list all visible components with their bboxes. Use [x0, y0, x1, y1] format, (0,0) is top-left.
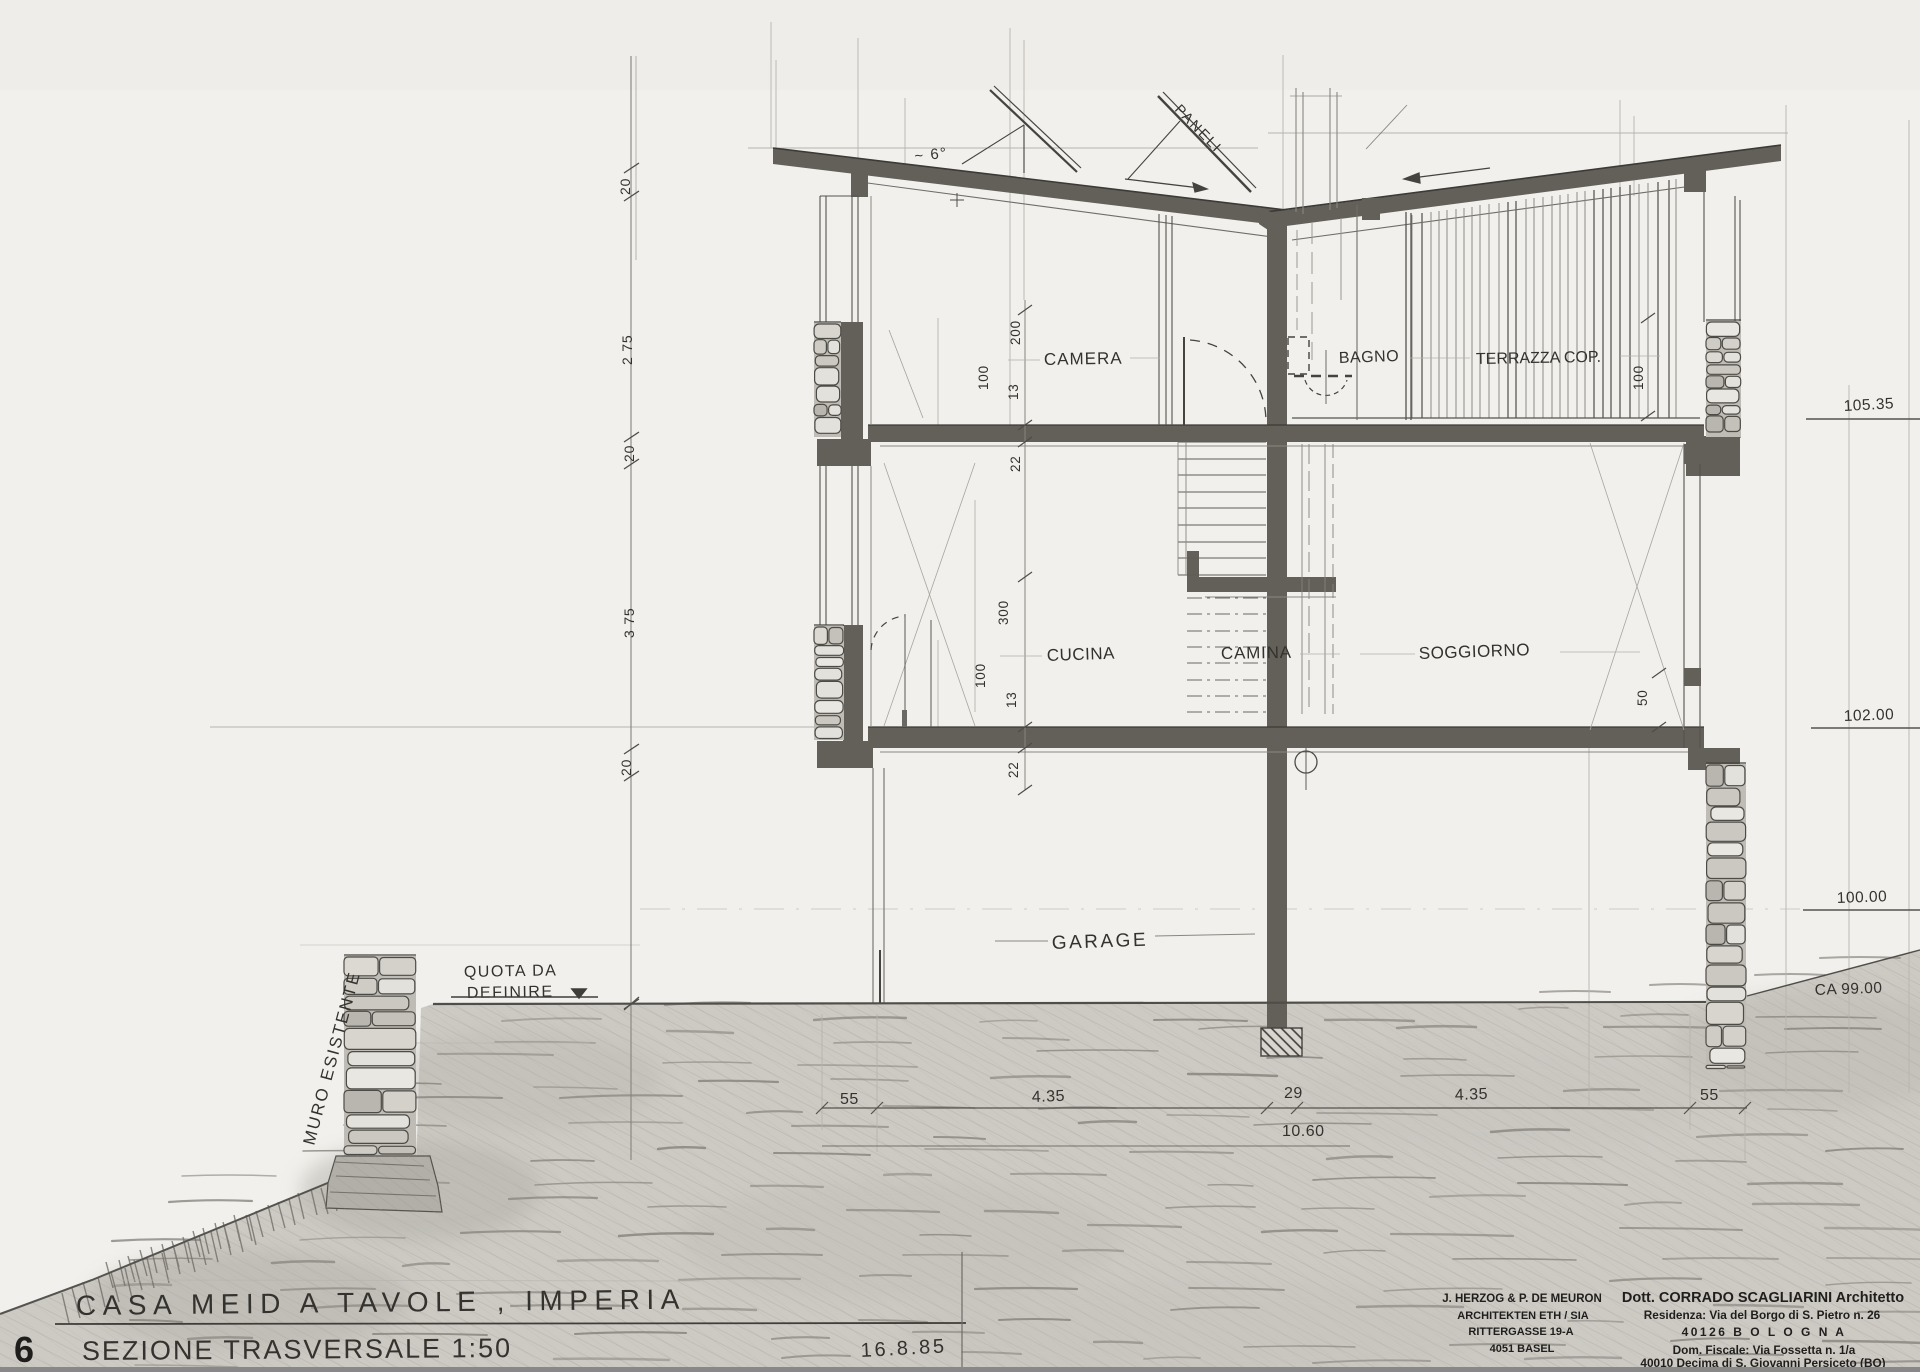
svg-text:QUOTA DA: QUOTA DA: [464, 962, 558, 981]
svg-text:105.35: 105.35: [1843, 395, 1894, 415]
svg-text:BAGNO: BAGNO: [1339, 348, 1400, 367]
svg-text:2 75: 2 75: [619, 335, 635, 365]
svg-text:CA 99.00: CA 99.00: [1814, 980, 1882, 999]
svg-text:22: 22: [1008, 455, 1023, 472]
svg-text:CUCINA: CUCINA: [1046, 644, 1115, 665]
svg-text:6: 6: [14, 1329, 34, 1367]
svg-text:CAMINA: CAMINA: [1221, 643, 1292, 663]
svg-text:3 75: 3 75: [621, 608, 637, 638]
svg-text:Dott. CORRADO SCAGLIARINI Arch: Dott. CORRADO SCAGLIARINI Architetto: [1622, 1290, 1904, 1306]
svg-text:J. HERZOG & P. DE MEURON: J. HERZOG & P. DE MEURON: [1442, 1293, 1602, 1305]
svg-text:SEZIONE TRASVERSALE 1:5: SEZIONE TRASVERSALE 1:50: [82, 1333, 512, 1366]
svg-text:SOGGIORNO: SOGGIORNO: [1418, 640, 1530, 663]
svg-text:Dom. Fiscale: Via Fossetta: Dom. Fiscale: Via Fossetta n. 1/a: [1673, 1343, 1856, 1357]
svg-text:55: 55: [1700, 1087, 1719, 1104]
svg-text:22: 22: [1006, 761, 1021, 778]
svg-text:100: 100: [1631, 365, 1646, 390]
svg-text:4.35: 4.35: [1455, 1086, 1489, 1104]
svg-text:4051 BASEL: 4051 BASEL: [1490, 1343, 1555, 1355]
svg-text:20: 20: [621, 445, 637, 462]
svg-text:RITTERGASSE 19-A: RITTERGASSE 19-A: [1468, 1326, 1573, 1338]
svg-text:100.00: 100.00: [1837, 888, 1888, 907]
svg-text:40010 Decima di S. Giovanni Pe: 40010 Decima di S. Giovanni Persiceto (B…: [1640, 1356, 1885, 1367]
svg-text:CASA MEID A TAVOLE , IMPER: CASA MEID A TAVOLE , IMPERIA: [76, 1284, 686, 1321]
svg-text:ARCHITEKTEN ETH / SIA: ARCHITEKTEN ETH / SIA: [1457, 1310, 1588, 1322]
svg-text:200: 200: [1008, 320, 1023, 345]
svg-text:Residenza: Via del Borgo di S.: Residenza: Via del Borgo di S. Pietro n.…: [1644, 1308, 1881, 1322]
svg-text:CAMERA: CAMERA: [1044, 349, 1123, 369]
svg-text:DEFINIRE: DEFINIRE: [467, 983, 554, 1002]
svg-text:102.00: 102.00: [1844, 706, 1895, 725]
svg-text:100: 100: [976, 365, 991, 390]
svg-text:20: 20: [617, 178, 633, 195]
svg-text:13: 13: [1006, 383, 1021, 400]
svg-text:50: 50: [1635, 689, 1650, 706]
svg-text:GARAGE: GARAGE: [1051, 930, 1148, 954]
svg-text:55: 55: [840, 1091, 859, 1108]
svg-text:100: 100: [973, 663, 988, 688]
svg-text:10.60: 10.60: [1282, 1123, 1325, 1140]
svg-text:20: 20: [618, 759, 634, 776]
svg-text:13: 13: [1004, 691, 1019, 708]
svg-text:300: 300: [996, 600, 1011, 625]
svg-text:29: 29: [1284, 1085, 1303, 1102]
svg-text:TERRAZZA COP.: TERRAZZA COP.: [1476, 349, 1601, 368]
svg-text:~ 6°: ~ 6°: [914, 145, 949, 165]
svg-text:16.8.85: 16.8.85: [860, 1335, 947, 1361]
svg-text:4.35: 4.35: [1032, 1088, 1066, 1106]
svg-text:40126 B O L O G N A: 40126 B O L O G N A: [1682, 1325, 1847, 1339]
